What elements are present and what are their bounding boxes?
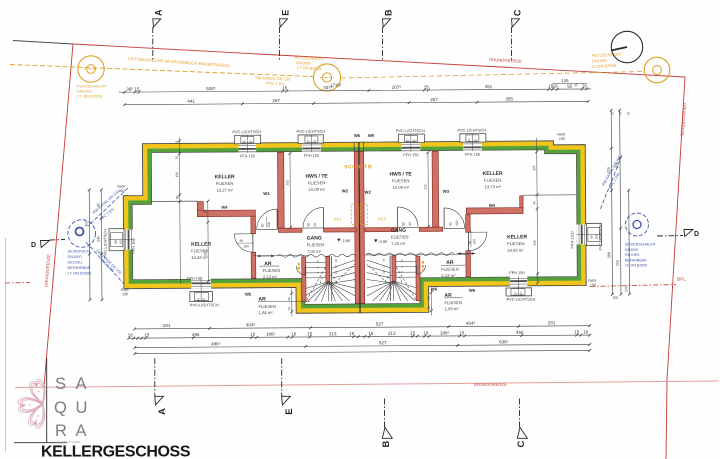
svg-text:15: 15 xyxy=(175,156,179,160)
svg-text:FLIESEN: FLIESEN xyxy=(216,181,234,186)
svg-text:456: 456 xyxy=(516,330,524,335)
svg-text:240: 240 xyxy=(97,236,101,242)
svg-text:FFH 150: FFH 150 xyxy=(240,153,256,158)
svg-text:FPH 1150: FPH 1150 xyxy=(570,230,575,248)
svg-text:90: 90 xyxy=(96,203,100,207)
svg-text:A: A xyxy=(154,9,164,16)
svg-text:180: 180 xyxy=(114,239,118,244)
svg-text:LT. ON B2506: LT. ON B2506 xyxy=(68,272,92,276)
svg-text:FLIESEN: FLIESEN xyxy=(507,241,525,246)
svg-text:PVC-LICHTSCH.: PVC-LICHTSCH. xyxy=(102,228,107,258)
svg-text:FLIESEN: FLIESEN xyxy=(263,268,281,273)
svg-text:13,27 m²: 13,27 m² xyxy=(216,187,233,192)
svg-text:302: 302 xyxy=(84,221,88,227)
svg-text:GANG: GANG xyxy=(391,228,406,234)
svg-text:92: 92 xyxy=(519,292,523,296)
svg-text:355: 355 xyxy=(505,96,513,101)
svg-text:80: 80 xyxy=(590,235,594,239)
svg-text:80: 80 xyxy=(401,222,405,226)
svg-text:39⁵: 39⁵ xyxy=(126,87,133,92)
svg-text:404⁵: 404⁵ xyxy=(246,322,256,327)
svg-text:PST: PST xyxy=(378,216,386,221)
svg-text:18: 18 xyxy=(427,306,431,310)
svg-text:FLIESEN: FLIESEN xyxy=(307,242,325,247)
svg-text:88: 88 xyxy=(287,297,291,301)
svg-text:W3: W3 xyxy=(263,191,270,196)
svg-text:DN1000: DN1000 xyxy=(68,255,82,259)
svg-text:PVC-LICHTSCH.: PVC-LICHTSCH. xyxy=(507,297,537,302)
svg-text:80: 80 xyxy=(119,240,123,244)
svg-text:10: 10 xyxy=(316,260,320,264)
svg-text:262: 262 xyxy=(285,180,289,186)
svg-text:FPH 150: FPH 150 xyxy=(187,276,203,281)
svg-text:16: 16 xyxy=(382,258,386,262)
svg-text:A: A xyxy=(157,408,168,415)
svg-text:BEFAHRBAR: BEFAHRBAR xyxy=(625,258,647,262)
svg-text:W6: W6 xyxy=(431,286,438,291)
svg-text:PVC-LICHTSCH.: PVC-LICHTSCH. xyxy=(457,128,487,133)
svg-text:KELLER: KELLER xyxy=(507,234,527,240)
svg-text:Q: Q xyxy=(54,399,67,417)
svg-text:10: 10 xyxy=(459,330,465,335)
svg-text:527: 527 xyxy=(379,340,387,345)
svg-text:A: A xyxy=(76,375,87,393)
svg-text:213: 213 xyxy=(388,331,396,336)
svg-text:DECKEL: DECKEL xyxy=(68,261,83,265)
svg-text:80: 80 xyxy=(468,240,472,244)
svg-text:1,09 m²: 1,09 m² xyxy=(445,306,460,311)
svg-text:15: 15 xyxy=(349,331,355,336)
svg-text:BEFAHRBAR: BEFAHRBAR xyxy=(68,266,91,270)
svg-text:10: 10 xyxy=(400,259,404,263)
svg-text:281: 281 xyxy=(163,323,171,328)
svg-text:B: B xyxy=(383,9,393,16)
svg-text:R: R xyxy=(55,422,67,440)
svg-text:PVC-LICHTSCH.: PVC-LICHTSCH. xyxy=(190,302,220,307)
svg-text:-2,86: -2,86 xyxy=(378,239,387,244)
svg-text:B: B xyxy=(381,440,392,447)
svg-text:KELLER: KELLER xyxy=(191,242,211,248)
svg-text:100: 100 xyxy=(590,283,596,287)
svg-text:281: 281 xyxy=(548,320,556,325)
svg-text:15: 15 xyxy=(307,331,313,336)
svg-text:RD.KIES: RD.KIES xyxy=(625,253,640,257)
svg-text:PVC-LICHTSCH.: PVC-LICHTSCH. xyxy=(396,128,426,133)
svg-text:636⁵: 636⁵ xyxy=(499,339,509,344)
svg-text:15: 15 xyxy=(144,332,150,337)
svg-text:267: 267 xyxy=(272,98,280,103)
svg-text:92: 92 xyxy=(412,139,416,143)
svg-text:80: 80 xyxy=(240,239,244,243)
svg-text:100: 100 xyxy=(122,292,128,296)
svg-text:80: 80 xyxy=(306,223,310,227)
svg-text:92: 92 xyxy=(467,139,471,143)
svg-text:13,73 m²: 13,73 m² xyxy=(484,184,501,189)
svg-text:17: 17 xyxy=(382,264,386,268)
svg-text:92: 92 xyxy=(242,140,246,144)
svg-text:W5: W5 xyxy=(245,292,252,297)
svg-text:18: 18 xyxy=(382,270,386,274)
svg-text:W2: W2 xyxy=(342,188,349,193)
svg-text:456: 456 xyxy=(192,332,200,337)
svg-text:FFH 150: FFH 150 xyxy=(304,153,320,158)
svg-text:7,02 m²: 7,02 m² xyxy=(391,241,406,246)
svg-text:SICKERSCH.: SICKERSCH. xyxy=(68,250,91,254)
svg-text:18: 18 xyxy=(175,141,179,145)
svg-text:100: 100 xyxy=(118,189,124,193)
svg-text:HWS / TE: HWS / TE xyxy=(389,171,412,177)
svg-text:15: 15 xyxy=(574,329,580,334)
svg-text:451: 451 xyxy=(485,84,493,89)
svg-text:527: 527 xyxy=(376,321,384,326)
svg-text:100: 100 xyxy=(612,296,618,300)
svg-text:196: 196 xyxy=(175,172,179,178)
svg-text:FLIESEN: FLIESEN xyxy=(308,180,326,185)
svg-text:404⁵: 404⁵ xyxy=(466,321,476,326)
svg-text:15: 15 xyxy=(282,86,288,91)
svg-text:15: 15 xyxy=(626,111,630,115)
svg-text:FFH 150: FFH 150 xyxy=(465,152,481,157)
svg-text:1730⁵: 1730⁵ xyxy=(330,83,342,88)
svg-text:125: 125 xyxy=(561,78,569,83)
svg-text:10,09 m²: 10,09 m² xyxy=(308,187,325,192)
svg-text:18: 18 xyxy=(423,331,429,336)
svg-text:E: E xyxy=(284,408,295,414)
svg-text:195: 195 xyxy=(532,165,536,171)
svg-text:88: 88 xyxy=(427,296,431,300)
svg-text:80: 80 xyxy=(260,223,264,227)
svg-text:U: U xyxy=(76,399,88,417)
svg-text:441: 441 xyxy=(187,99,195,104)
svg-text:D: D xyxy=(694,231,699,238)
svg-text:538⁵: 538⁵ xyxy=(206,86,216,91)
svg-text:W6: W6 xyxy=(354,133,361,138)
svg-text:92: 92 xyxy=(513,292,517,296)
svg-text:FLIESEN: FLIESEN xyxy=(392,178,410,183)
svg-text:SCHÜTTB: SCHÜTTB xyxy=(344,163,372,170)
svg-text:80: 80 xyxy=(448,222,452,226)
svg-text:18: 18 xyxy=(553,84,559,89)
svg-text:206: 206 xyxy=(615,162,619,168)
svg-text:186⁵: 186⁵ xyxy=(266,332,276,337)
svg-text:18: 18 xyxy=(582,83,588,88)
svg-text:W3: W3 xyxy=(443,189,450,194)
svg-text:92: 92 xyxy=(249,140,253,144)
svg-text:FPH 150: FPH 150 xyxy=(509,270,525,275)
svg-text:15: 15 xyxy=(410,331,416,336)
svg-text:298: 298 xyxy=(533,240,537,246)
svg-text:14,43 m²: 14,43 m² xyxy=(507,248,524,253)
svg-text:213: 213 xyxy=(329,331,337,336)
svg-text:100: 100 xyxy=(559,137,565,141)
svg-text:388: 388 xyxy=(607,252,611,258)
svg-text:BFL: BFL xyxy=(677,277,686,283)
svg-text:92: 92 xyxy=(306,140,310,144)
svg-text:90: 90 xyxy=(313,223,317,227)
svg-text:PVC-LICHTSCH.: PVC-LICHTSCH. xyxy=(232,129,262,134)
svg-text:W4: W4 xyxy=(489,203,496,208)
svg-text:GRUNDGRENZE: GRUNDGRENZE xyxy=(474,382,507,387)
svg-text:90: 90 xyxy=(175,196,179,200)
svg-text:-2,86: -2,86 xyxy=(341,238,350,243)
svg-text:FLIESEN: FLIESEN xyxy=(484,178,502,183)
svg-text:15: 15 xyxy=(574,83,578,87)
svg-text:S: S xyxy=(55,375,66,393)
svg-text:PVC-LICHTSCH.: PVC-LICHTSCH. xyxy=(296,129,326,134)
svg-text:LT. ON B2506: LT. ON B2506 xyxy=(625,264,647,268)
svg-text:296: 296 xyxy=(203,251,207,257)
svg-text:92: 92 xyxy=(474,138,478,142)
svg-text:FLIESEN: FLIESEN xyxy=(444,300,462,305)
svg-text:FLIESEN: FLIESEN xyxy=(259,304,277,309)
svg-text:FLIESEN: FLIESEN xyxy=(441,267,459,272)
svg-text:92: 92 xyxy=(202,298,206,302)
svg-text:W2: W2 xyxy=(365,190,372,195)
svg-text:W6: W6 xyxy=(469,288,476,293)
svg-text:W4: W4 xyxy=(221,205,228,210)
svg-text:KELLERGESCHOSS: KELLERGESCHOSS xyxy=(41,444,191,459)
svg-text:PVC-LICHTSCH.: PVC-LICHTSCH. xyxy=(598,223,602,250)
svg-text:200: 200 xyxy=(455,220,459,226)
svg-text:D: D xyxy=(31,242,36,249)
svg-text:92: 92 xyxy=(196,298,200,302)
svg-text:10,09 m²: 10,09 m² xyxy=(392,185,409,190)
svg-text:100: 100 xyxy=(624,286,628,292)
svg-text:92: 92 xyxy=(567,84,573,89)
svg-text:E: E xyxy=(280,10,290,16)
svg-text:FFH 150: FFH 150 xyxy=(403,152,419,157)
svg-text:W6: W6 xyxy=(368,133,375,138)
svg-text:18: 18 xyxy=(128,333,134,338)
svg-text:18: 18 xyxy=(334,271,338,275)
svg-text:PST: PST xyxy=(334,217,342,222)
svg-text:2,13 m²: 2,13 m² xyxy=(441,273,456,278)
svg-text:40: 40 xyxy=(532,201,536,205)
svg-text:18: 18 xyxy=(287,307,291,311)
svg-text:15: 15 xyxy=(368,331,374,336)
svg-text:200: 200 xyxy=(472,239,476,245)
svg-text:C: C xyxy=(512,9,522,16)
svg-text:KELLER: KELLER xyxy=(483,171,503,177)
svg-text:C: C xyxy=(516,440,527,447)
svg-text:SICKERSCHACHT: SICKERSCHACHT xyxy=(625,243,657,247)
svg-text:200: 200 xyxy=(267,222,271,228)
svg-text:KELLER: KELLER xyxy=(215,174,235,180)
svg-text:17: 17 xyxy=(334,265,338,269)
svg-text:206: 206 xyxy=(616,260,620,266)
svg-text:DN1000: DN1000 xyxy=(625,248,638,252)
svg-text:FLIESEN: FLIESEN xyxy=(391,234,409,239)
svg-text:60: 60 xyxy=(203,209,207,213)
svg-text:90: 90 xyxy=(408,222,412,226)
svg-text:267: 267 xyxy=(430,97,438,102)
svg-text:16: 16 xyxy=(334,259,338,263)
svg-text:186⁵: 186⁵ xyxy=(440,330,450,335)
svg-text:18: 18 xyxy=(583,329,589,334)
svg-text:45: 45 xyxy=(618,112,622,116)
svg-text:A: A xyxy=(76,422,87,440)
svg-text:10: 10 xyxy=(250,332,256,337)
svg-text:18: 18 xyxy=(291,331,297,336)
svg-text:207⁵: 207⁵ xyxy=(392,85,402,90)
svg-text:206: 206 xyxy=(607,167,611,173)
svg-text:92: 92 xyxy=(406,139,410,143)
svg-text:496⁵: 496⁵ xyxy=(211,341,221,346)
svg-text:125: 125 xyxy=(423,184,427,190)
svg-text:2,13 m²: 2,13 m² xyxy=(263,274,278,279)
svg-text:FPH 150: FPH 150 xyxy=(131,237,136,253)
svg-text:1,84 m²: 1,84 m² xyxy=(259,310,274,315)
svg-text:LT. ON B2506: LT. ON B2506 xyxy=(77,94,103,99)
svg-text:HWS / TE: HWS / TE xyxy=(305,174,328,180)
svg-text:GANG: GANG xyxy=(307,235,322,241)
svg-text:15: 15 xyxy=(424,85,430,90)
svg-text:15: 15 xyxy=(134,87,140,92)
svg-text:92: 92 xyxy=(313,140,317,144)
svg-text:15: 15 xyxy=(610,112,614,116)
svg-text:200: 200 xyxy=(244,244,250,248)
svg-text:7,02 m²: 7,02 m² xyxy=(307,249,322,254)
